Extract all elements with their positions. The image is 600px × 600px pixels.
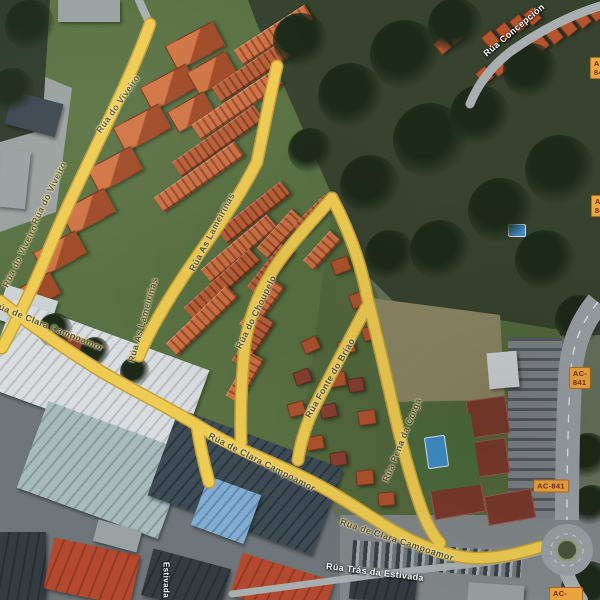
satellite-map[interactable]: Rúa do Viveiro Rúa do Viveiro Rúa do Viv… [0,0,600,600]
road-ac-841 [567,302,598,520]
route-badge-ac841: AC-841 [549,587,583,600]
route-badge-ac841: AC-841 [591,195,600,217]
road-network [0,0,600,600]
road-rua-do-viveiro [2,24,150,348]
street-label-estivada-vertical: Estivada [162,562,171,598]
roundabout [541,524,593,576]
route-badge-ac841: AC-841 [533,480,569,493]
route-badge-ac841: AC-841 [590,57,600,79]
route-badge-ac841: AC-841 [569,367,591,389]
